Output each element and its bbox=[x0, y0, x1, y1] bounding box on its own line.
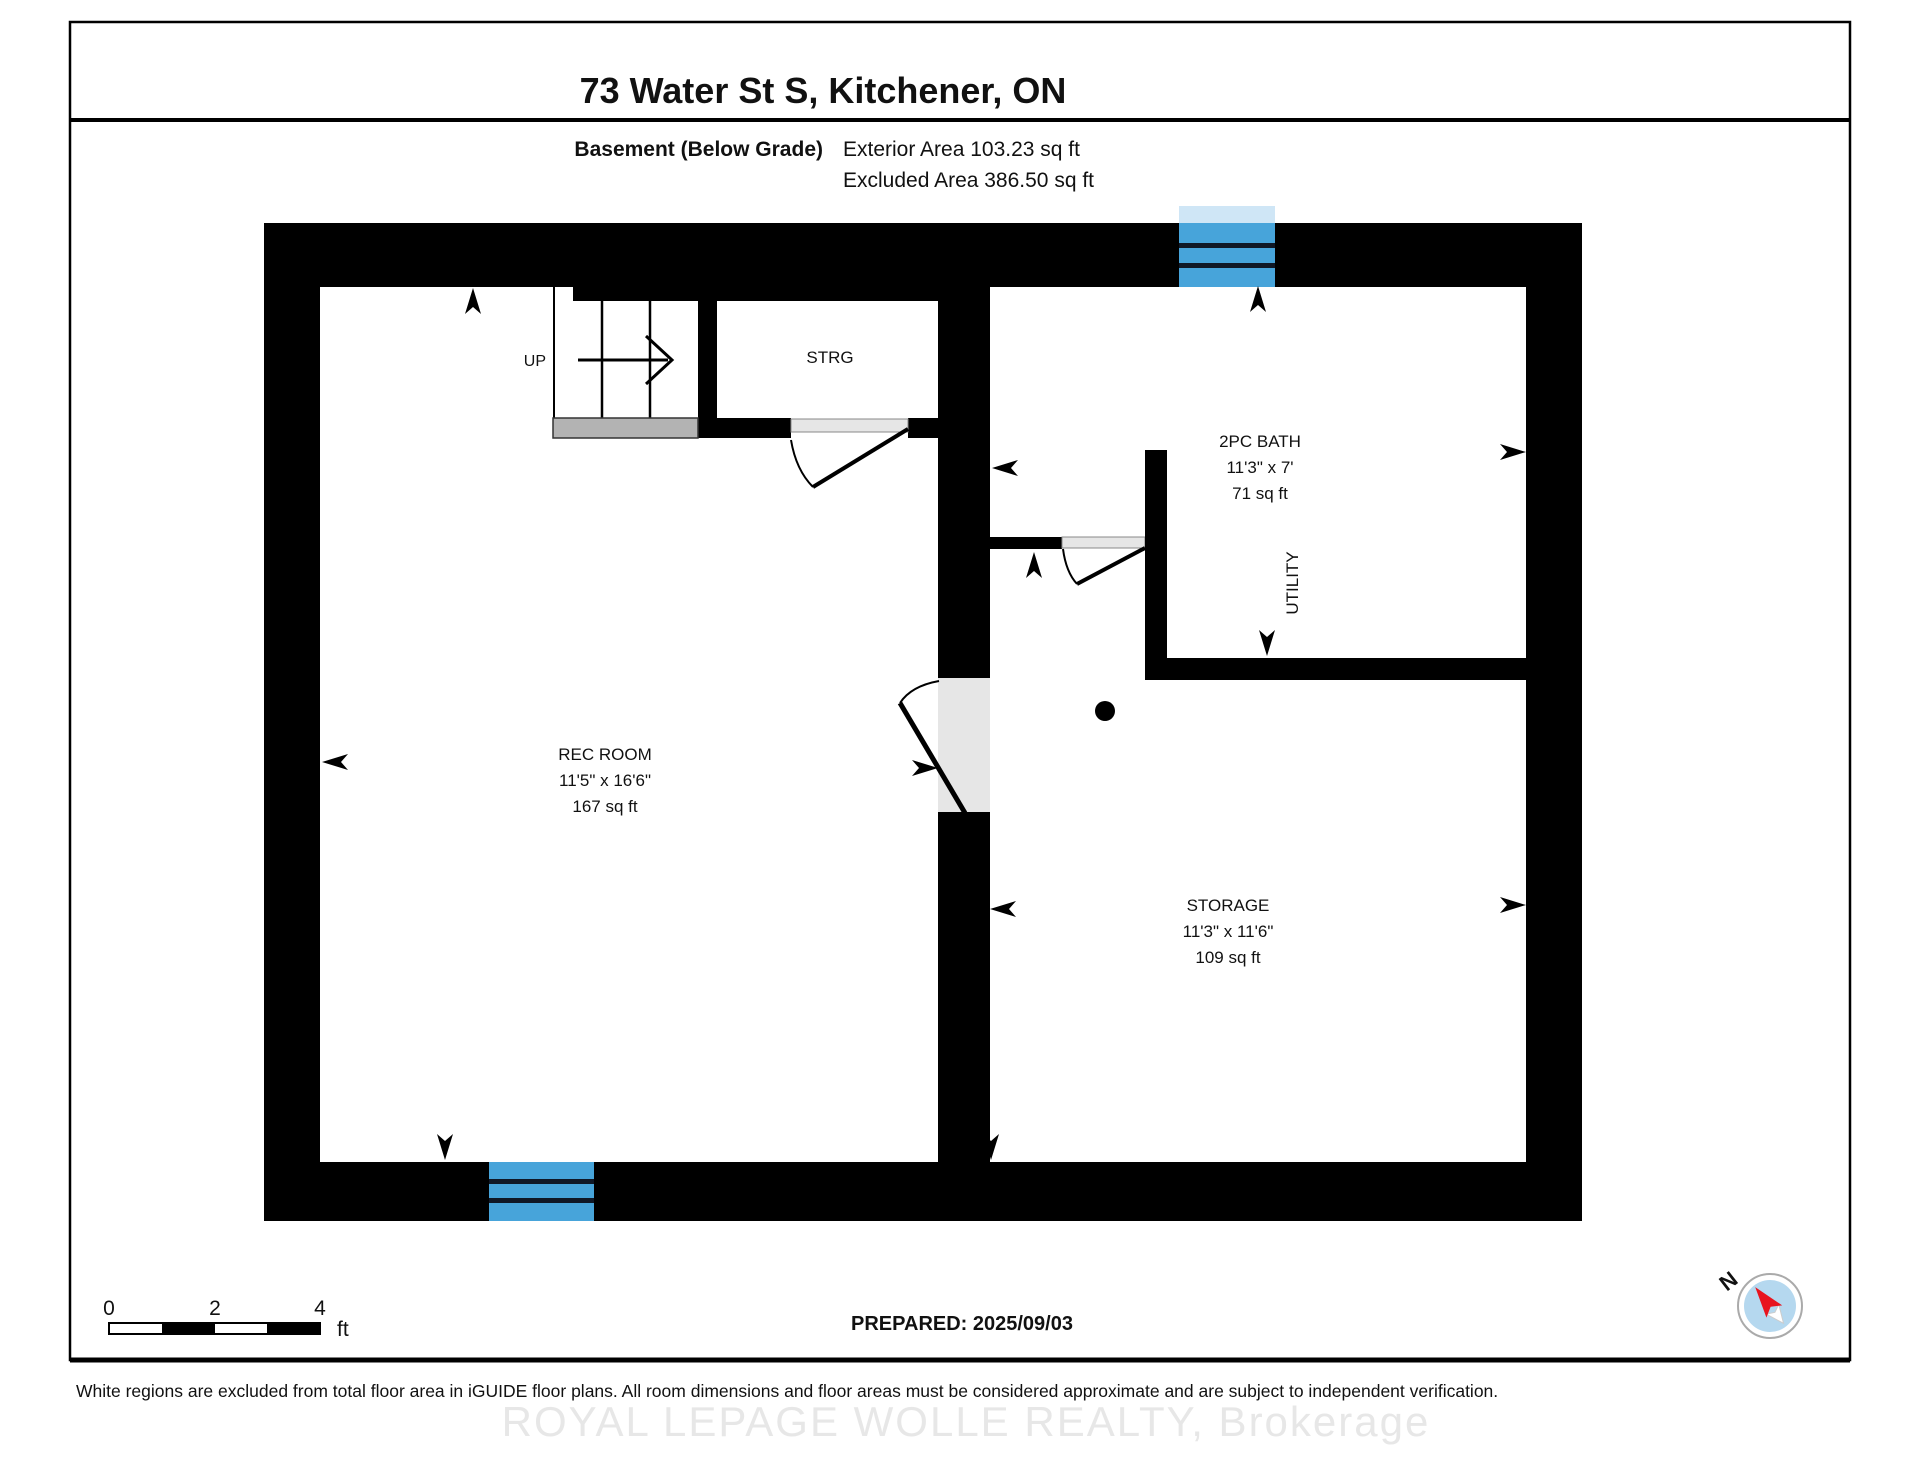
column-dot-icon bbox=[1095, 701, 1115, 721]
dimension-arrow-right-icon bbox=[1500, 444, 1526, 460]
dimension-arrow-down-icon bbox=[1259, 630, 1275, 656]
dimension-arrow-up-icon bbox=[1026, 552, 1042, 578]
compass-north-label: N bbox=[1714, 1266, 1742, 1295]
bath-area: 71 sq ft bbox=[1232, 484, 1288, 503]
page-title: 73 Water St S, Kitchener, ON bbox=[580, 70, 1067, 111]
strg-label: STRG bbox=[806, 348, 853, 367]
excluded-area-label: Excluded Area 386.50 sq ft bbox=[843, 169, 1094, 192]
scale-tick-2: 2 bbox=[209, 1297, 221, 1320]
dimension-arrow-right-icon bbox=[1500, 897, 1526, 913]
prepared-date: PREPARED: 2025/09/03 bbox=[851, 1313, 1073, 1335]
wall-top-stair-strip bbox=[573, 287, 990, 301]
wall-right bbox=[1526, 223, 1582, 1221]
wall-top bbox=[264, 223, 1582, 287]
stair-landing bbox=[553, 418, 698, 438]
window-mullion bbox=[1179, 263, 1275, 268]
utility-label: UTILITY bbox=[1283, 551, 1302, 614]
scale-bar: 0 2 4 ft bbox=[103, 1297, 349, 1341]
dimension-arrow-up-icon bbox=[465, 288, 481, 314]
stair-right-wall bbox=[698, 301, 717, 438]
dimension-arrow-left-icon bbox=[990, 901, 1016, 917]
central-wall-upper bbox=[938, 301, 990, 678]
bath-name: 2PC BATH bbox=[1219, 432, 1301, 451]
brokerage-watermark: ROYAL LEPAGE WOLLE REALTY, Brokerage bbox=[502, 1398, 1431, 1445]
storage-label-block: STORAGE 11'3" x 11'6" 109 sq ft bbox=[1183, 896, 1274, 967]
window-glass bbox=[1179, 223, 1275, 287]
dimension-arrows bbox=[322, 286, 1526, 1160]
bath-dimensions: 11'3" x 7' bbox=[1226, 458, 1293, 477]
rec-room-dimensions: 11'5" x 16'6" bbox=[559, 771, 651, 790]
floor-label: Basement (Below Grade) bbox=[574, 138, 823, 161]
wall-left bbox=[264, 223, 320, 1221]
hall-door-swing-icon bbox=[1062, 537, 1145, 584]
scale-unit-label: ft bbox=[337, 1318, 349, 1341]
exterior-area-label: Exterior Area 103.23 sq ft bbox=[843, 138, 1080, 161]
strg-door-swing-icon bbox=[791, 419, 908, 487]
window-mullion bbox=[489, 1179, 594, 1184]
rec-room-label-block: REC ROOM 11'5" x 16'6" 167 sq ft bbox=[558, 745, 652, 816]
dimension-arrow-down-icon bbox=[437, 1134, 453, 1160]
top-window-icon bbox=[1179, 206, 1275, 287]
window-mullion bbox=[489, 1198, 594, 1203]
floor-plan-page: 73 Water St S, Kitchener, ON Basement (B… bbox=[0, 0, 1920, 1484]
scale-tick-4: 4 bbox=[314, 1297, 326, 1320]
floor-plan-canvas: 73 Water St S, Kitchener, ON Basement (B… bbox=[0, 0, 1920, 1484]
dimension-arrow-left-icon bbox=[322, 754, 348, 770]
bath-left-wall bbox=[1145, 450, 1167, 680]
bottom-window-icon bbox=[489, 1162, 594, 1221]
scale-bar-segment bbox=[267, 1323, 320, 1334]
window-mullion bbox=[1179, 243, 1275, 248]
central-wall-lower bbox=[938, 812, 990, 1162]
storage-area: 109 sq ft bbox=[1195, 948, 1260, 967]
rec-room-area: 167 sq ft bbox=[572, 797, 637, 816]
stairs-up-label: UP bbox=[524, 353, 546, 370]
dimension-arrow-up-icon bbox=[1250, 286, 1266, 312]
staircase: UP bbox=[524, 287, 717, 438]
bath-bottom-wall bbox=[1145, 658, 1526, 680]
strg-bottom-wall bbox=[717, 418, 791, 438]
hall-wall bbox=[990, 537, 1062, 549]
bath-label-block: 2PC BATH 11'3" x 7' 71 sq ft bbox=[1219, 432, 1301, 503]
scale-tick-0: 0 bbox=[103, 1297, 115, 1320]
rec-room-name: REC ROOM bbox=[558, 745, 652, 764]
wall-bottom bbox=[264, 1162, 1582, 1221]
rec-room-door-swing-icon bbox=[900, 678, 990, 813]
disclaimer-text: White regions are excluded from total fl… bbox=[76, 1381, 1498, 1401]
strg-bottom-wall bbox=[908, 418, 938, 438]
window-sill bbox=[1179, 206, 1275, 224]
stair-direction-arrow-icon bbox=[578, 336, 672, 384]
window-glass bbox=[489, 1162, 594, 1221]
compass-north-icon: N bbox=[1714, 1266, 1802, 1338]
dimension-arrow-left-icon bbox=[992, 460, 1018, 476]
storage-dimensions: 11'3" x 11'6" bbox=[1183, 922, 1274, 941]
outer-walls bbox=[264, 223, 1582, 1221]
scale-bar-segment bbox=[162, 1323, 215, 1334]
strg-room: STRG bbox=[717, 348, 938, 487]
storage-name: STORAGE bbox=[1187, 896, 1270, 915]
